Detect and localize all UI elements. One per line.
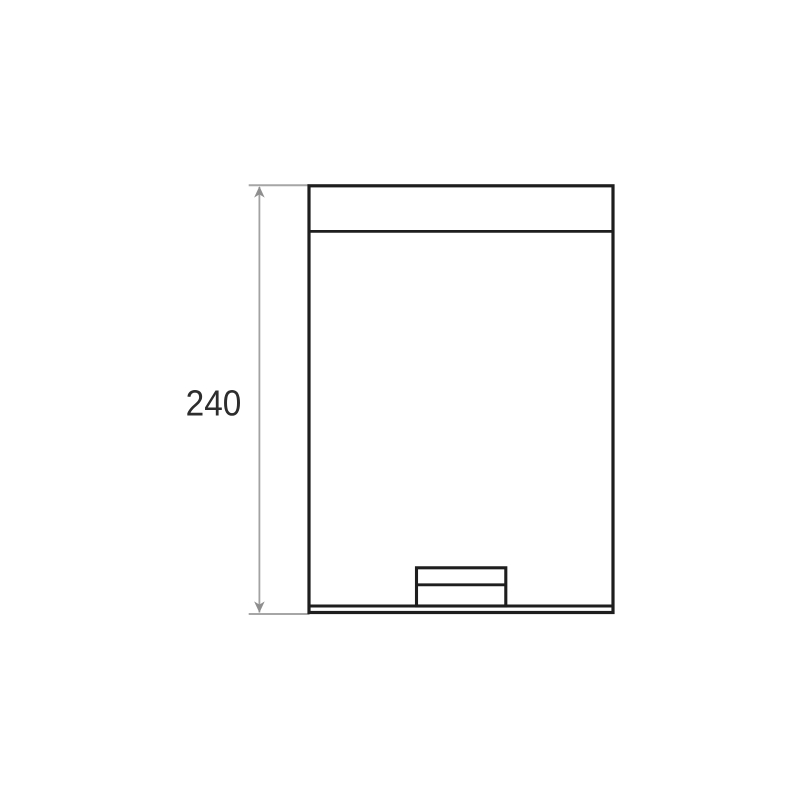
svg-text:240: 240 bbox=[186, 383, 242, 424]
